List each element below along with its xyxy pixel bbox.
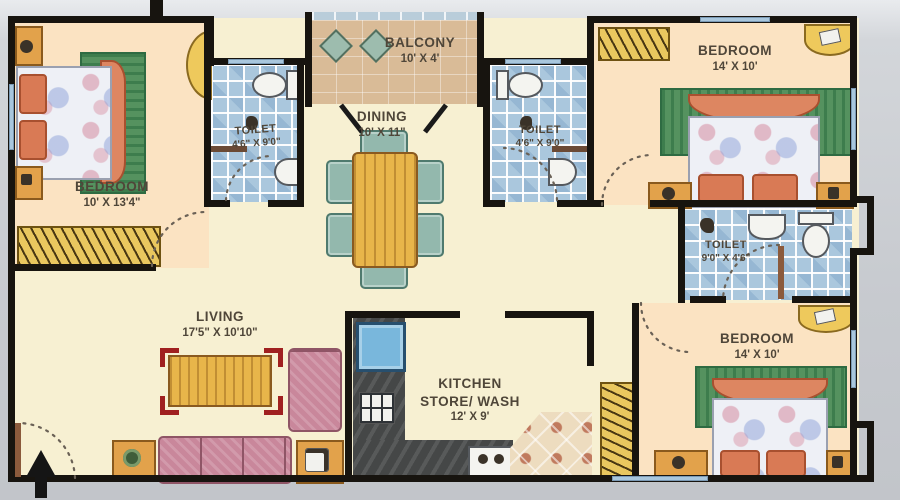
nightstand-knob-icon xyxy=(662,187,675,200)
room-label-toilet-right: TOILET 9'0" X 4'6" xyxy=(702,238,751,265)
stove-burner-icon xyxy=(494,454,504,464)
coffee-table xyxy=(168,355,272,407)
wall xyxy=(345,311,352,478)
window xyxy=(851,330,856,388)
pillow-icon xyxy=(19,120,47,160)
window xyxy=(228,59,284,64)
plant-icon xyxy=(123,449,141,467)
room-label-bedroom-top-right: BEDROOM 14' X 10' xyxy=(698,42,772,74)
pillow-icon xyxy=(752,174,798,203)
wall xyxy=(345,311,460,318)
wc-icon xyxy=(802,224,830,258)
kitchen-sink xyxy=(356,322,406,372)
wc-icon xyxy=(252,72,287,98)
wall xyxy=(587,16,594,207)
armchair-sofa xyxy=(288,348,342,432)
wall xyxy=(8,264,156,271)
room-label-toilet-left: TOILET 4'6" X 9'0" xyxy=(231,121,282,152)
wall xyxy=(587,311,594,366)
wall xyxy=(150,0,163,20)
table-corner-bracket xyxy=(264,348,283,367)
pillow-icon xyxy=(766,450,806,477)
dining-table xyxy=(352,152,418,268)
balcony-railing xyxy=(312,12,477,20)
window xyxy=(612,476,708,481)
wall xyxy=(678,200,685,303)
room-label-bedroom-left: BEDROOM 10' X 13'4" xyxy=(75,178,149,210)
table-corner-bracket xyxy=(160,396,179,415)
room-label-kitchen: KITCHEN STORE/ WASH 12' X 9' xyxy=(420,375,520,425)
wardrobe xyxy=(17,226,161,267)
telephone-icon xyxy=(305,448,329,472)
wall xyxy=(594,200,604,207)
nightstand-knob-icon xyxy=(672,456,685,469)
window xyxy=(700,17,770,22)
lamp-icon xyxy=(828,187,839,199)
wall xyxy=(505,311,594,318)
wall xyxy=(8,16,214,23)
wall xyxy=(297,58,304,207)
room-label-living: LIVING 17'5" X 10'10" xyxy=(182,308,257,340)
stove-burner-icon xyxy=(478,454,488,464)
table-corner-bracket xyxy=(160,348,179,367)
room-label-bedroom-bottom-right: BEDROOM 14' X 10' xyxy=(720,330,794,362)
wardrobe xyxy=(598,27,670,61)
pillow-icon xyxy=(19,74,47,114)
nightstand-knob-icon xyxy=(21,174,32,185)
dining-chair xyxy=(414,213,444,257)
room-label-balcony: BALCONY 10' X 4' xyxy=(385,34,455,66)
wc-icon xyxy=(508,72,543,98)
dining-chair xyxy=(414,160,444,204)
wall xyxy=(632,303,639,478)
wall xyxy=(867,428,874,482)
room-label-dining: DINING 10' X 11" xyxy=(357,108,407,140)
wall xyxy=(850,421,874,428)
wall xyxy=(483,58,490,207)
pillow-icon xyxy=(720,450,760,477)
window-grid-icon xyxy=(359,392,395,424)
pillow-icon xyxy=(698,174,744,203)
window xyxy=(851,88,856,150)
wall xyxy=(204,200,230,207)
shower-icon xyxy=(700,218,714,233)
floor-plan: BEDROOM 10' X 13'4" TOILET 4'6" X 9'0" B… xyxy=(0,0,900,500)
room-label-toilet-center: TOILET 4'6" X 9'0" xyxy=(516,123,565,150)
wall xyxy=(483,200,505,207)
window xyxy=(9,84,14,150)
wall xyxy=(204,16,211,207)
washbasin-icon xyxy=(548,158,577,186)
wall xyxy=(8,475,874,482)
wall xyxy=(305,12,312,107)
lamp-icon xyxy=(832,456,843,468)
wall xyxy=(690,296,726,303)
nightstand-knob-icon xyxy=(20,40,33,53)
washbasin-icon xyxy=(748,214,786,240)
window xyxy=(505,59,561,64)
stove-icon xyxy=(468,446,516,478)
table-corner-bracket xyxy=(264,396,283,415)
wall xyxy=(792,296,857,303)
wall xyxy=(867,196,874,255)
wall xyxy=(850,428,857,482)
